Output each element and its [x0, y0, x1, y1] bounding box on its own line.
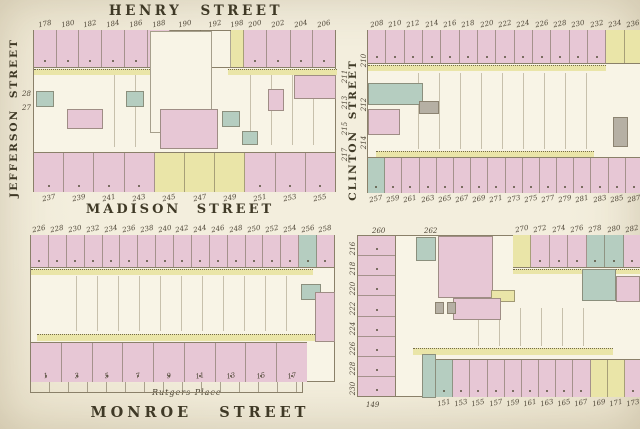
- lot-number: 214: [424, 20, 439, 30]
- lot-number: 159: [505, 399, 520, 409]
- lot-216: 216: [441, 30, 459, 63]
- lot-261: 261: [402, 158, 419, 193]
- lot-number: 239: [72, 194, 87, 204]
- lot-222: 222: [496, 30, 514, 63]
- gray-building: [435, 302, 444, 314]
- lot-number: 153: [454, 399, 469, 409]
- lot-number: 202: [271, 20, 286, 30]
- street-number: 149: [366, 402, 379, 409]
- lot-number: 244: [193, 225, 208, 235]
- lot-173: 173: [625, 360, 640, 397]
- lot-number: 222: [498, 20, 513, 30]
- lot-228: 228: [551, 30, 569, 63]
- lot-number: 163: [540, 399, 555, 409]
- lot-9: 9: [154, 343, 185, 382]
- green-building: [582, 269, 616, 301]
- lot-number: 281: [575, 195, 590, 205]
- street-number: 260: [372, 228, 385, 235]
- lot-number: 236: [122, 225, 137, 235]
- lot-number: 173: [626, 399, 640, 409]
- street-number: 211: [342, 70, 349, 83]
- block-madison-monroe-west: 2262282302322342362382402422442462482502…: [30, 235, 335, 382]
- lot-row-bottom: 2572592612632652672692712732752772792812…: [368, 157, 640, 193]
- lot-number: 259: [386, 195, 401, 205]
- pink-building: [315, 292, 335, 342]
- lot-212: 212: [405, 30, 423, 63]
- lot-163: 163: [539, 360, 556, 397]
- pink-building: [616, 276, 640, 302]
- lot-274: 274: [550, 235, 568, 267]
- pink-building: [67, 109, 103, 129]
- green-building: [36, 91, 54, 107]
- lot-258: 258: [317, 235, 334, 267]
- lot-number: 206: [317, 20, 332, 30]
- lot-number: 263: [420, 195, 435, 205]
- lot-number: 230: [571, 20, 586, 30]
- lot-number: 167: [574, 399, 589, 409]
- lot-236: 236: [120, 235, 138, 267]
- green-building: [126, 91, 144, 107]
- lot-279: 279: [557, 158, 574, 193]
- lot-number: 270: [514, 225, 529, 235]
- street-number: 215: [342, 122, 349, 135]
- green-building: [416, 237, 436, 261]
- lot-7: 7: [123, 343, 154, 382]
- lot-153: 153: [453, 360, 470, 397]
- lot-number: 15: [256, 372, 266, 381]
- lot-202: 202: [267, 30, 291, 67]
- lot-lines: [56, 276, 296, 331]
- lot-17: 17: [277, 343, 307, 382]
- street-number: 214: [361, 136, 368, 149]
- lot-number: 157: [488, 399, 503, 409]
- lot-row-bottom: 1357911131517: [31, 342, 307, 382]
- yellow-building: [413, 348, 613, 355]
- lot-number: 234: [608, 20, 623, 30]
- lot-210: 210: [386, 30, 404, 63]
- lot-number: 226: [350, 342, 357, 355]
- lot-number: 265: [438, 195, 453, 205]
- pink-building: [160, 109, 218, 149]
- lot-232: 232: [588, 30, 606, 63]
- lot-number: 184: [106, 20, 121, 30]
- lot-240: 240: [156, 235, 174, 267]
- street-number: 28: [22, 91, 31, 98]
- lot-number: 7: [135, 373, 141, 381]
- lot-number: 246: [211, 225, 226, 235]
- lot-number: 261: [403, 195, 418, 205]
- lot-241: 241: [94, 153, 124, 192]
- lot-number: 256: [300, 225, 315, 235]
- lot-245: 245: [155, 153, 185, 192]
- lot-224: 224: [358, 317, 395, 337]
- lot-number: 171: [609, 399, 624, 409]
- lot-226: 226: [533, 30, 551, 63]
- lot-269: 269: [471, 158, 488, 193]
- lot-184: 184: [102, 30, 125, 67]
- lot-row-topright: 270272274276278280282: [513, 235, 640, 268]
- lot-11: 11: [185, 343, 216, 382]
- lot-number: 226: [32, 225, 47, 235]
- lot-253: 253: [276, 153, 306, 192]
- lot-252: 252: [263, 235, 281, 267]
- pink-building: [268, 89, 284, 111]
- lot-row-bottom: 151153155157159161163165167169171173: [436, 359, 640, 397]
- street-number: 217: [342, 148, 349, 161]
- lot-171: 171: [608, 360, 625, 397]
- lot-157: 157: [488, 360, 505, 397]
- rutgers-female-institute-building: [438, 236, 493, 298]
- street-number: 262: [424, 228, 437, 235]
- green-building: [222, 111, 240, 127]
- atlas-map: HENRY STREET MADISON STREET MONROE STREE…: [0, 0, 640, 429]
- lot-278: 278: [587, 235, 605, 267]
- lot-220: 220: [358, 276, 395, 296]
- lot-number: 282: [625, 225, 640, 235]
- lot-number: 250: [247, 225, 262, 235]
- lot-259: 259: [385, 158, 402, 193]
- lot-number: 165: [557, 399, 572, 409]
- lot-number: 218: [461, 20, 476, 30]
- yellow-building: [31, 269, 313, 275]
- lot-281: 281: [574, 158, 591, 193]
- lot-number: 232: [86, 225, 101, 235]
- lot-247: 247: [185, 153, 215, 192]
- lot-number: 230: [350, 382, 357, 395]
- lot-number: 275: [524, 195, 539, 205]
- lot-number: 278: [588, 225, 603, 235]
- yellow-building: [513, 269, 640, 274]
- lot-number: 238: [139, 225, 154, 235]
- lot-number: 267: [455, 195, 470, 205]
- lot-number: 269: [472, 195, 487, 205]
- pink-building: [294, 75, 336, 99]
- lot-249: 249: [215, 153, 245, 192]
- lot-243: 243: [125, 153, 155, 192]
- rutgers-place-strip: [30, 382, 303, 393]
- lot-15: 15: [246, 343, 277, 382]
- lot-165: 165: [556, 360, 573, 397]
- block-henry-madison-east: 2082102122142162182202222242262282302322…: [367, 30, 640, 193]
- gray-building: [613, 117, 628, 147]
- lot-270: 270: [513, 235, 531, 267]
- yellow-building: [376, 151, 594, 157]
- lot-number: 11: [195, 372, 205, 381]
- lot-number: 5: [105, 373, 111, 381]
- lot-number: 182: [83, 20, 98, 30]
- lot-222: 222: [358, 296, 395, 316]
- lot-206: 206: [313, 30, 335, 67]
- pink-building: [453, 298, 501, 320]
- lot-number: 9: [166, 373, 172, 381]
- lot-265: 265: [437, 158, 454, 193]
- street-number: 212: [361, 98, 368, 111]
- lot-number: 228: [50, 225, 65, 235]
- lot-number: 161: [523, 399, 538, 409]
- lot-number: 237: [41, 194, 56, 204]
- lot-number: 198: [230, 20, 245, 30]
- lot-number: 228: [553, 20, 568, 30]
- lot-number: 226: [534, 20, 549, 30]
- lot-230: 230: [570, 30, 588, 63]
- lot-236: 236: [625, 30, 640, 63]
- lot-number: 210: [388, 20, 403, 30]
- street-number: 213: [342, 96, 349, 109]
- lot-number: 218: [350, 262, 357, 275]
- lot-178: 178: [34, 30, 57, 67]
- lot-275: 275: [523, 158, 540, 193]
- lot-number: 248: [229, 225, 244, 235]
- lot-number: 220: [350, 282, 357, 295]
- lot-number: 258: [318, 225, 333, 235]
- lot-number: 232: [589, 20, 604, 30]
- lot-row-top: 2262282302322342362382402422442462482502…: [31, 235, 334, 268]
- lot-number: 200: [248, 20, 263, 30]
- street-label-jefferson: JEFFERSON STREET: [8, 38, 20, 198]
- lot-number: 208: [369, 20, 384, 30]
- lot-number: 224: [350, 322, 357, 335]
- lot-number: 255: [313, 194, 328, 204]
- lot-155: 155: [470, 360, 487, 397]
- lot-number: 222: [350, 302, 357, 315]
- lot-number: 186: [129, 20, 144, 30]
- clinton-lot-column: 216218220222224226228230: [358, 236, 396, 396]
- lot-273: 273: [506, 158, 523, 193]
- lot-204: 204: [291, 30, 314, 67]
- lot-208: 208: [368, 30, 386, 63]
- lot-number: 242: [175, 225, 190, 235]
- lot-287: 287: [626, 158, 640, 193]
- lot-number: 257: [369, 195, 384, 205]
- lot-232: 232: [85, 235, 103, 267]
- lot-row-bottom: 237239241243245247249251253255: [34, 152, 335, 192]
- lot-number: 254: [282, 225, 297, 235]
- lot-number: 273: [506, 195, 521, 205]
- lot-283: 283: [591, 158, 608, 193]
- street-label-monroe: MONROE STREET: [91, 404, 310, 421]
- lot-number: 280: [607, 225, 622, 235]
- lot-282: 282: [624, 235, 640, 267]
- lot-number: 216: [443, 20, 458, 30]
- lot-number: 204: [294, 20, 309, 30]
- lot-230: 230: [358, 377, 395, 396]
- lot-number: 228: [350, 362, 357, 375]
- lot-row-top: 2082102122142162182202222242262282302322…: [368, 30, 640, 64]
- green-building: [422, 354, 436, 398]
- lot-number: 188: [151, 20, 166, 30]
- gray-building: [419, 101, 439, 114]
- lot-271: 271: [488, 158, 505, 193]
- lot-3: 3: [62, 343, 93, 382]
- lot-151: 151: [436, 360, 453, 397]
- street-number: 210: [361, 54, 368, 67]
- lot-number: 220: [479, 20, 494, 30]
- lot-218: 218: [358, 256, 395, 276]
- lot-272: 272: [531, 235, 549, 267]
- lot-number: 212: [406, 20, 421, 30]
- green-building: [368, 83, 423, 105]
- lot-number: 277: [541, 195, 556, 205]
- lot-number: 240: [157, 225, 172, 235]
- lot-1: 1: [31, 343, 62, 382]
- lot-186: 186: [125, 30, 148, 67]
- lot-267: 267: [454, 158, 471, 193]
- lot-237: 237: [34, 153, 64, 192]
- lot-number: 155: [471, 399, 486, 409]
- lot-285: 285: [609, 158, 626, 193]
- lot-180: 180: [57, 30, 80, 67]
- lot-280: 280: [605, 235, 623, 267]
- lot-214: 214: [423, 30, 441, 63]
- lot-number: 271: [489, 195, 504, 205]
- lot-number: 216: [350, 241, 357, 254]
- lot-number: 252: [265, 225, 280, 235]
- lot-251: 251: [245, 153, 275, 192]
- lot-228: 228: [358, 357, 395, 377]
- lot-number: 234: [104, 225, 119, 235]
- lot-234: 234: [103, 235, 121, 267]
- lot-number: 230: [68, 225, 83, 235]
- lot-number: 17: [287, 372, 297, 381]
- yellow-building: [368, 65, 606, 71]
- gray-building: [447, 302, 456, 314]
- lot-198: 198: [231, 30, 244, 67]
- lot-250: 250: [246, 235, 264, 267]
- lot-242: 242: [174, 235, 192, 267]
- lot-number: 192: [208, 20, 223, 30]
- block-henry-madison-west: 1781801821841861881901921982002022042062…: [33, 30, 336, 192]
- lot-200: 200: [244, 30, 267, 67]
- street-label-madison: MADISON STREET: [86, 202, 274, 217]
- green-building: [242, 131, 258, 145]
- lot-number: 276: [570, 225, 585, 235]
- lot-224: 224: [515, 30, 533, 63]
- lot-number: 236: [626, 20, 640, 30]
- lot-255: 255: [306, 153, 335, 192]
- block-madison-monroe-east: 2702722742762782802821511531551571591611…: [357, 235, 640, 397]
- lot-number: 279: [558, 195, 573, 205]
- lot-228: 228: [49, 235, 67, 267]
- lot-246: 246: [210, 235, 228, 267]
- lot-161: 161: [522, 360, 539, 397]
- lot-234: 234: [606, 30, 624, 63]
- yellow-building: [34, 69, 150, 75]
- lot-number: 151: [437, 399, 452, 409]
- lot-254: 254: [281, 235, 299, 267]
- lot-226: 226: [31, 235, 49, 267]
- lot-number: 274: [551, 225, 566, 235]
- lot-244: 244: [192, 235, 210, 267]
- lot-number: 13: [225, 372, 235, 381]
- yellow-building: [37, 334, 329, 341]
- lot-number: 253: [283, 194, 298, 204]
- lot-number: 169: [591, 399, 606, 409]
- lot-182: 182: [79, 30, 102, 67]
- lot-169: 169: [591, 360, 608, 397]
- lot-number: 224: [516, 20, 531, 30]
- lot-number: 272: [533, 225, 548, 235]
- lot-276: 276: [568, 235, 586, 267]
- lot-239: 239: [64, 153, 94, 192]
- lot-220: 220: [478, 30, 496, 63]
- lot-159: 159: [505, 360, 522, 397]
- street-label-henry: HENRY STREET: [109, 3, 283, 19]
- lot-277: 277: [540, 158, 557, 193]
- lot-5: 5: [93, 343, 124, 382]
- lot-167: 167: [573, 360, 590, 397]
- lot-226: 226: [358, 337, 395, 357]
- lot-257: 257: [368, 158, 385, 193]
- lot-263: 263: [420, 158, 437, 193]
- lot-216: 216: [358, 236, 395, 256]
- lot-230: 230: [67, 235, 85, 267]
- lot-218: 218: [460, 30, 478, 63]
- lot-number: 3: [74, 373, 80, 381]
- lot-number: 1: [43, 373, 49, 381]
- lot-number: 190: [178, 20, 193, 30]
- lot-number: 287: [627, 195, 640, 205]
- lot-number: 283: [592, 195, 607, 205]
- lot-256: 256: [299, 235, 317, 267]
- lot-number: 180: [60, 20, 75, 30]
- lot-248: 248: [228, 235, 246, 267]
- lot-number: 178: [38, 20, 53, 30]
- street-number: 27: [22, 105, 31, 112]
- lot-13: 13: [216, 343, 247, 382]
- lot-number: 285: [609, 195, 624, 205]
- pink-building: [368, 109, 400, 135]
- lot-238: 238: [138, 235, 156, 267]
